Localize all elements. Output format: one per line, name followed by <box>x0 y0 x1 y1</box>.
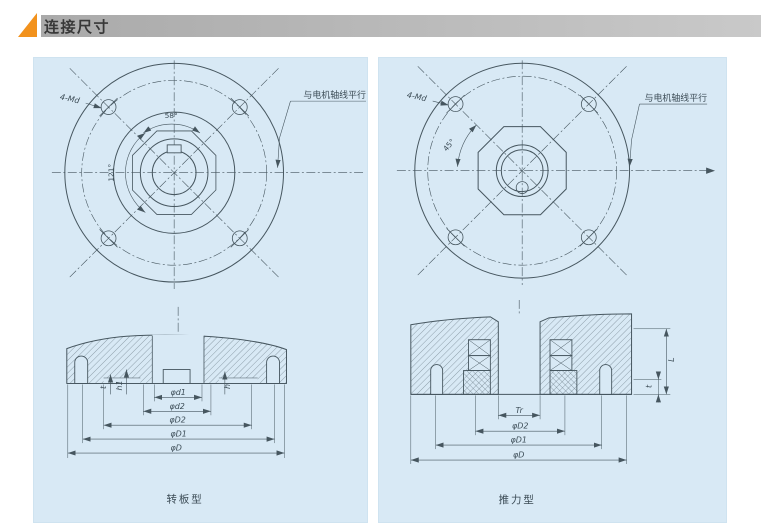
nut-block <box>464 371 491 395</box>
dim-L: L <box>667 357 676 361</box>
section-header: 连接尺寸 <box>18 13 761 37</box>
dim-h1: h1 <box>115 380 124 390</box>
dim-D2: φD2 <box>512 422 528 431</box>
bearing-symbols <box>468 340 571 371</box>
mount-hole <box>75 356 88 383</box>
angle-side-label: 45° <box>441 137 457 153</box>
bolt-count-label: 4-Md <box>406 90 428 103</box>
mount-hole <box>267 356 280 383</box>
page-title: 连接尺寸 <box>41 16 110 37</box>
dim-D: φD <box>170 444 181 453</box>
axis-arrow <box>706 168 715 174</box>
panel-thrust-type: 45° 4-Md 与电机轴线平行 Tr φD2 <box>378 57 727 523</box>
cross-section-view: Tr φD2 φD1 φD L t <box>411 300 676 464</box>
bolt-count-label: 4-Md <box>59 92 81 105</box>
axis-note: 与电机轴线平行 <box>303 89 366 101</box>
axis-note: 与电机轴线平行 <box>645 92 708 104</box>
dim-d1: φd1 <box>170 388 185 397</box>
center-boss <box>163 370 190 384</box>
dim-d2: φd2 <box>169 402 184 411</box>
drawing-thrust: 45° 4-Md 与电机轴线平行 Tr φD2 <box>379 58 726 522</box>
keyway <box>167 145 181 153</box>
panel-rotary-vane-type: 58° 121° 4-Md 与电机轴线平行 φd1 φd2 φD <box>33 57 368 523</box>
dim-D1: φD1 <box>170 430 186 439</box>
dim-Tr: Tr <box>515 406 523 415</box>
flange-front-view: 45° 4-Md 与电机轴线平行 <box>397 60 715 285</box>
mount-hole <box>600 365 612 395</box>
caption-thrust: 推力型 <box>499 493 536 506</box>
header-bar: 连接尺寸 <box>41 15 761 37</box>
dim-D1: φD1 <box>510 436 526 445</box>
mount-hole <box>431 365 443 395</box>
dim-t: t <box>644 384 653 388</box>
angle-top-label: 58° <box>165 111 178 120</box>
dim-h: h <box>223 384 232 389</box>
dim-D2: φD2 <box>169 416 185 425</box>
caption-rotary-vane: 转板型 <box>166 493 203 506</box>
dim-D: φD <box>513 451 524 460</box>
angle-side-label: 121° <box>107 163 116 181</box>
flange-front-view: 58° 121° 4-Md 与电机轴线平行 <box>52 60 366 289</box>
drawing-rotary-vane: 58° 121° 4-Md 与电机轴线平行 φd1 φd2 φD <box>34 58 367 522</box>
orange-corner-icon <box>18 13 37 37</box>
cross-section-view: φd1 φd2 φD2 φD1 φD t h1 h <box>67 307 287 458</box>
nut-block <box>550 371 577 395</box>
